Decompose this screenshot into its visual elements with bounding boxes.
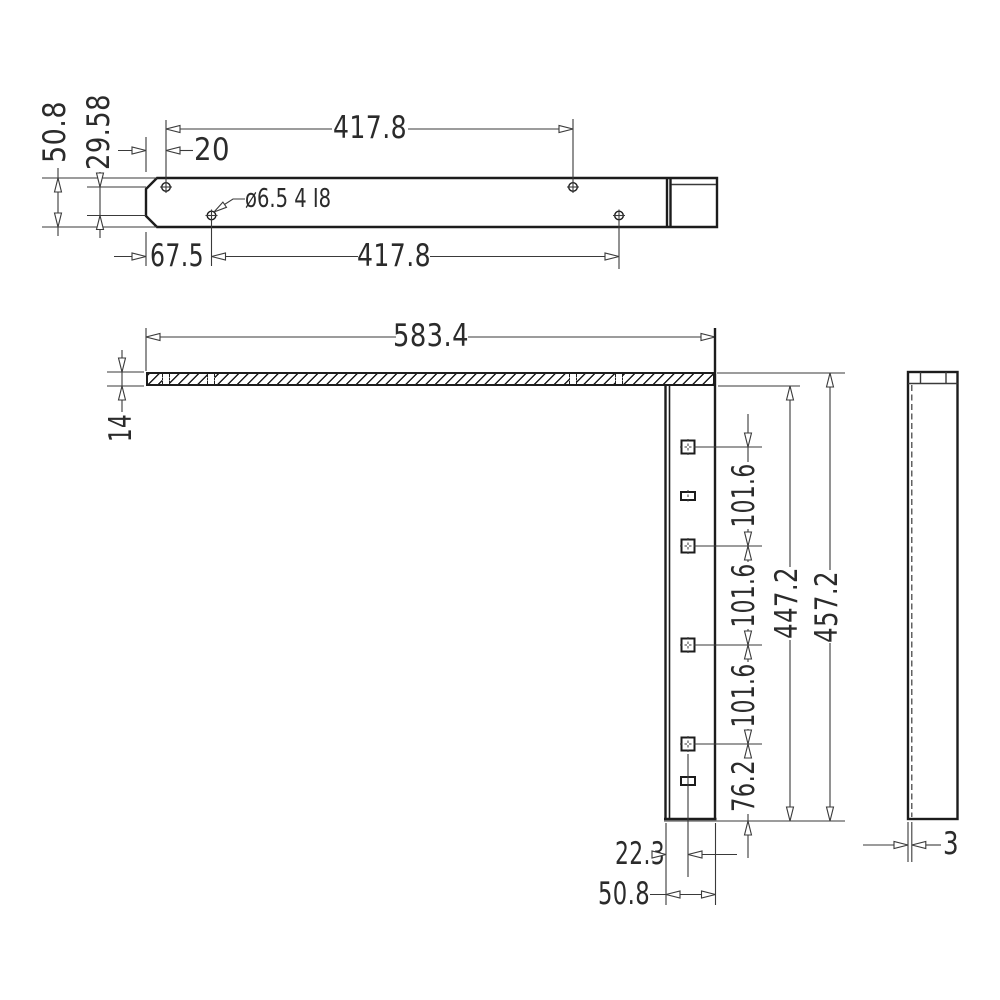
dim-bottom-first-hole-offset: 67.5 <box>150 238 204 274</box>
square-hole <box>680 439 696 455</box>
side-outline <box>908 372 958 819</box>
slot-hole <box>681 490 695 502</box>
dim-bottom-hole-pitch: 417.8 <box>357 238 431 274</box>
technical-drawing-page: 50.8 29.58 20 417.8 ø6.5 4 I8 <box>0 0 1000 1000</box>
dim-first-hole-offset: 20 <box>194 132 230 168</box>
dim-overall-height: 457.2 <box>809 571 845 643</box>
dim-leg-width: 50.8 <box>598 876 650 912</box>
square-hole <box>680 736 696 752</box>
front-view: 583.4 14 <box>103 318 845 912</box>
dim-plate-height: 50.8 <box>37 101 73 163</box>
square-hole <box>680 637 696 653</box>
plate-outline <box>146 178 717 227</box>
dim-plate-length: 583.4 <box>393 318 469 354</box>
dim-hole-row-offset: 29.58 <box>81 94 117 170</box>
hole-callout-label: ø6.5 4 I8 <box>245 184 331 214</box>
dim-hole-pitch-3: 101.6 <box>726 664 762 728</box>
dim-plate-thickness: 14 <box>103 414 139 442</box>
dim-bottom-hole-offset: 76.2 <box>726 760 762 812</box>
top-view: 50.8 29.58 20 417.8 ø6.5 4 I8 <box>37 94 717 274</box>
dim-hole-pitch-2: 101.6 <box>726 564 762 628</box>
dim-inner-height: 447.2 <box>769 567 805 639</box>
dim-top-hole-pitch: 417.8 <box>333 110 407 146</box>
square-hole <box>680 538 696 554</box>
drawing-canvas: 50.8 29.58 20 417.8 ø6.5 4 I8 <box>0 0 1000 1000</box>
dim-wall-thickness: 3 <box>943 826 959 862</box>
side-view: 3 <box>863 372 959 862</box>
drill-hole <box>160 181 172 193</box>
drill-hole <box>567 181 579 193</box>
dim-hole-pitch-1: 101.6 <box>726 464 762 528</box>
drill-hole <box>613 210 625 222</box>
